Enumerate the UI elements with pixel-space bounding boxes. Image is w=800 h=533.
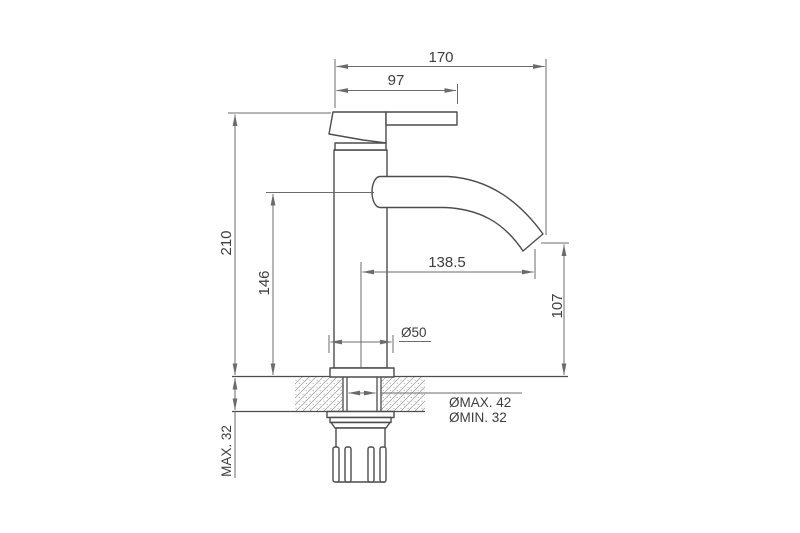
mounting-nut-rib — [333, 447, 339, 482]
mounting-nut-body — [336, 428, 385, 482]
mounting-hardware — [327, 412, 394, 483]
dim-label-deck-thickness: MAX. 32 — [219, 425, 234, 477]
dim-label-overall-width: 170 — [428, 49, 453, 66]
countertop-hatch-left — [295, 377, 343, 412]
dim-deck-thickness: MAX. 32 — [219, 378, 235, 478]
mounting-nut-shoulder — [331, 423, 390, 429]
dim-label-handle-length: 97 — [388, 72, 405, 89]
faucet-collar — [335, 143, 386, 150]
mounting-nut-rib — [380, 447, 386, 482]
faucet-spout — [372, 177, 543, 252]
mounting-nut-rib — [368, 447, 374, 482]
dim-overall-height: 210 — [218, 113, 331, 375]
drawing-canvas: 170 97 210 146 138.5 107 — [0, 0, 800, 533]
faucet-lever-handle — [386, 112, 457, 125]
mounting-nut-rib — [345, 447, 351, 482]
faucet-base-flange — [330, 368, 394, 377]
dim-label-overall-height: 210 — [218, 230, 235, 255]
dim-outlet-height: 107 — [541, 243, 569, 375]
dim-label-outlet-height: 107 — [549, 293, 566, 318]
dim-handle-length: 97 — [337, 72, 458, 104]
dim-label-hole-max: ØMAX. 42 — [449, 395, 511, 410]
mounting-washer-bottom — [330, 418, 391, 423]
faucet-technical-drawing: 170 97 210 146 138.5 107 — [0, 0, 800, 533]
faucet-handle-cap — [329, 112, 386, 143]
countertop-section — [232, 377, 568, 412]
dim-label-spout-height: 146 — [256, 270, 273, 295]
dim-label-base-diameter: Ø50 — [401, 325, 427, 340]
mounting-washer-top — [327, 412, 394, 418]
dim-label-hole-min: ØMIN. 32 — [449, 410, 507, 425]
dim-label-spout-reach: 138.5 — [428, 254, 466, 271]
countertop-hatch-right — [381, 377, 425, 412]
